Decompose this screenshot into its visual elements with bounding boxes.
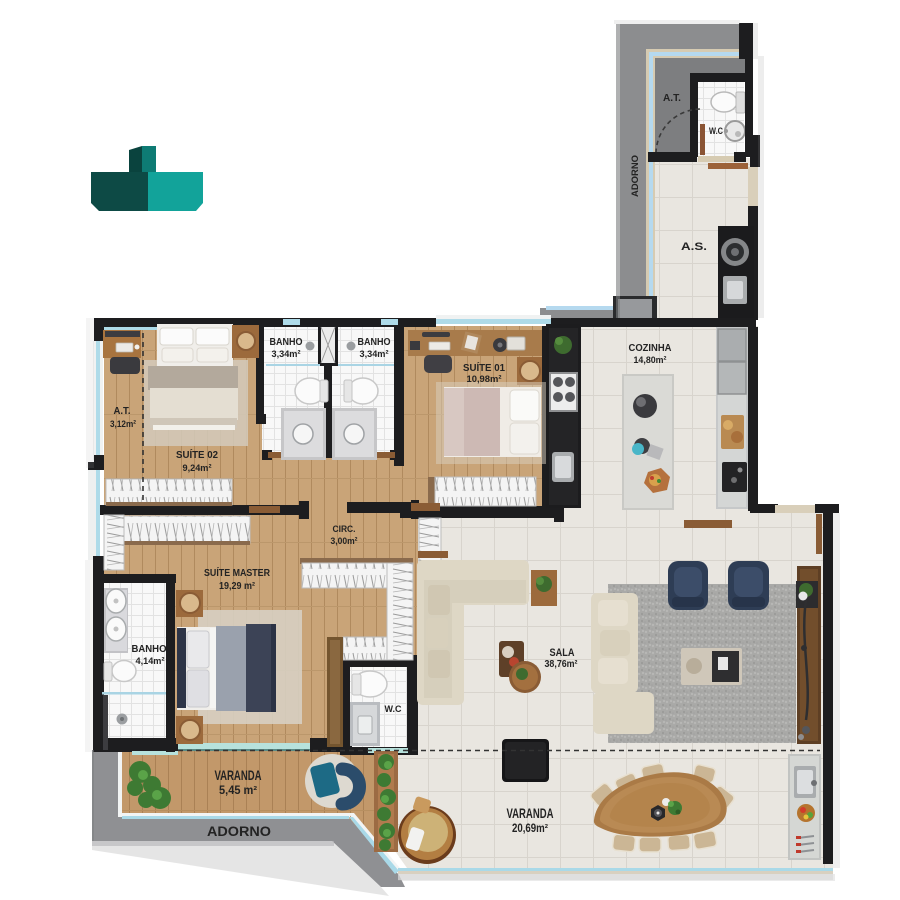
svg-text:10,98m²: 10,98m² [467,374,502,385]
svg-text:SUÍTE 01: SUÍTE 01 [463,361,505,374]
svg-text:3,34m²: 3,34m² [360,349,389,360]
svg-text:5,45 m²: 5,45 m² [219,785,257,797]
svg-text:3,00m²: 3,00m² [331,536,358,547]
svg-text:3,34m²: 3,34m² [272,349,301,360]
svg-text:A.T.: A.T. [114,406,131,417]
svg-text:A.S.: A.S. [681,241,707,253]
svg-text:9,24m²: 9,24m² [183,463,212,474]
svg-text:38,76m²: 38,76m² [545,659,579,670]
svg-text:4,14m²: 4,14m² [136,656,165,667]
svg-text:CIRC.: CIRC. [333,524,356,535]
svg-text:ADORNO: ADORNO [207,824,271,839]
svg-text:W.C: W.C [709,126,723,136]
svg-text:19,29 m²: 19,29 m² [219,581,256,592]
svg-text:SUÍTE 02: SUÍTE 02 [176,448,218,461]
svg-text:BANHO: BANHO [270,337,303,348]
svg-text:3,12m²: 3,12m² [110,419,136,430]
svg-text:SUÍTE MASTER: SUÍTE MASTER [204,566,270,579]
svg-text:A.T.: A.T. [663,92,681,104]
svg-text:VARANDA: VARANDA [507,805,554,821]
svg-text:BANHO: BANHO [358,337,391,348]
svg-text:14,80m²: 14,80m² [634,355,667,366]
svg-text:20,69m²: 20,69m² [512,823,548,835]
svg-text:ADORNO: ADORNO [630,155,640,197]
svg-text:SALA: SALA [550,647,575,659]
svg-text:BANHO: BANHO [132,644,167,655]
svg-text:W.C: W.C [385,704,402,714]
svg-text:COZINHA: COZINHA [629,343,672,354]
svg-text:VARANDA: VARANDA [215,767,262,783]
